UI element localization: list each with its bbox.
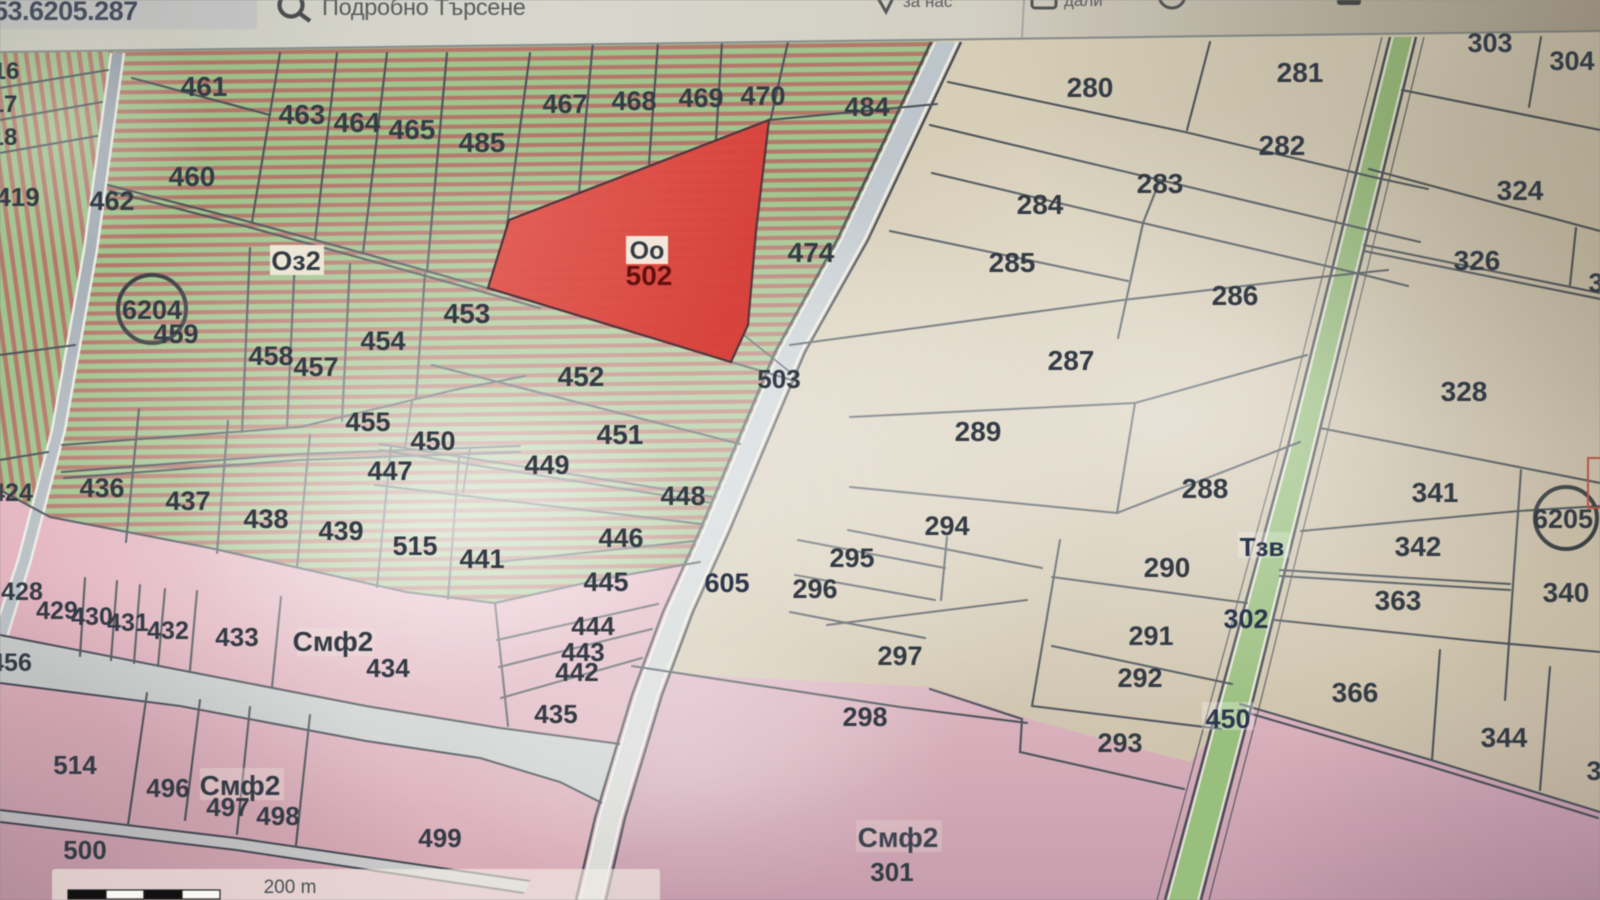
svg-text:298: 298 <box>842 702 887 732</box>
svg-text:484: 484 <box>844 92 889 122</box>
svg-text:281: 281 <box>1277 57 1324 88</box>
svg-text:326: 326 <box>1454 245 1501 276</box>
svg-text:605: 605 <box>704 568 749 598</box>
svg-text:446: 446 <box>598 523 643 553</box>
svg-text:437: 437 <box>165 486 210 516</box>
svg-text:344: 344 <box>1481 722 1528 753</box>
svg-text:450: 450 <box>1205 704 1250 734</box>
svg-text:302: 302 <box>1223 604 1268 634</box>
svg-text:290: 290 <box>1144 552 1191 583</box>
svg-text:441: 441 <box>459 544 504 574</box>
svg-text:498: 498 <box>256 801 299 831</box>
svg-text:303: 303 <box>1467 28 1512 58</box>
svg-text:Оз2: Оз2 <box>271 246 320 276</box>
svg-text:284: 284 <box>1017 189 1064 220</box>
svg-text:458: 458 <box>248 341 293 371</box>
svg-text:18: 18 <box>0 124 17 151</box>
svg-text:514: 514 <box>53 750 97 780</box>
svg-text:432: 432 <box>147 617 189 645</box>
svg-text:464: 464 <box>334 107 381 138</box>
svg-text:465: 465 <box>389 114 436 145</box>
svg-text:435: 435 <box>534 699 577 729</box>
svg-text:3: 3 <box>1586 756 1600 786</box>
svg-text:452: 452 <box>558 361 605 392</box>
svg-text:17: 17 <box>0 91 17 118</box>
svg-text:474: 474 <box>788 237 835 268</box>
svg-text:451: 451 <box>597 419 644 450</box>
svg-text:456: 456 <box>0 649 32 677</box>
svg-text:470: 470 <box>740 81 785 111</box>
svg-text:499: 499 <box>418 823 461 853</box>
svg-text:6205: 6205 <box>1533 504 1593 534</box>
svg-text:445: 445 <box>583 567 628 597</box>
svg-text:455: 455 <box>345 407 390 437</box>
svg-text:324: 324 <box>1497 175 1544 206</box>
svg-text:463: 463 <box>279 99 326 130</box>
svg-text:433: 433 <box>215 622 258 652</box>
svg-text:304: 304 <box>1549 46 1594 76</box>
svg-text:424: 424 <box>0 479 33 507</box>
svg-text:3: 3 <box>1588 268 1600 298</box>
svg-text:515: 515 <box>392 531 437 561</box>
svg-text:436: 436 <box>79 473 124 503</box>
svg-text:328: 328 <box>1441 376 1488 407</box>
svg-text:340: 340 <box>1543 577 1590 608</box>
svg-text:285: 285 <box>989 247 1036 278</box>
svg-text:502: 502 <box>626 260 673 291</box>
svg-text:434: 434 <box>366 653 410 683</box>
svg-text:449: 449 <box>524 450 569 480</box>
svg-text:450: 450 <box>410 426 455 456</box>
svg-text:Смф2: Смф2 <box>200 770 281 801</box>
svg-text:Смф2: Смф2 <box>293 626 374 657</box>
svg-text:503: 503 <box>757 364 800 394</box>
svg-text:485: 485 <box>459 127 506 158</box>
svg-text:289: 289 <box>955 416 1002 447</box>
svg-text:453: 453 <box>444 298 491 329</box>
svg-text:282: 282 <box>1259 130 1306 161</box>
svg-text:459: 459 <box>153 319 198 349</box>
svg-text:363: 363 <box>1375 585 1422 616</box>
svg-text:439: 439 <box>318 516 363 546</box>
svg-text:16: 16 <box>0 58 19 85</box>
svg-text:287: 287 <box>1048 345 1095 376</box>
svg-text:500: 500 <box>63 835 106 865</box>
svg-text:Смф2: Смф2 <box>858 822 939 853</box>
svg-text:301: 301 <box>870 857 913 887</box>
svg-text:286: 286 <box>1212 280 1259 311</box>
svg-text:454: 454 <box>360 326 405 356</box>
svg-text:294: 294 <box>924 511 969 541</box>
svg-text:419: 419 <box>0 182 40 212</box>
svg-text:462: 462 <box>89 186 134 216</box>
svg-text:342: 342 <box>1395 531 1442 562</box>
svg-text:283: 283 <box>1137 168 1184 199</box>
svg-text:431: 431 <box>107 609 149 637</box>
svg-text:288: 288 <box>1182 473 1229 504</box>
svg-text:200 m: 200 m <box>264 877 317 898</box>
svg-text:460: 460 <box>169 161 216 192</box>
svg-text:280: 280 <box>1067 72 1114 103</box>
svg-text:293: 293 <box>1097 728 1142 758</box>
svg-text:Тзв: Тзв <box>1240 532 1285 562</box>
svg-text:291: 291 <box>1128 621 1173 651</box>
svg-text:297: 297 <box>877 641 922 671</box>
svg-text:366: 366 <box>1332 677 1379 708</box>
svg-text:438: 438 <box>243 504 288 534</box>
svg-text:457: 457 <box>293 352 338 382</box>
svg-text:295: 295 <box>829 543 874 573</box>
svg-text:447: 447 <box>367 456 412 486</box>
svg-text:496: 496 <box>146 773 189 803</box>
svg-text:461: 461 <box>181 71 228 102</box>
svg-text:467: 467 <box>542 89 587 119</box>
svg-text:448: 448 <box>660 481 705 511</box>
svg-text:292: 292 <box>1117 663 1162 693</box>
svg-text:468: 468 <box>611 86 656 116</box>
svg-text:341: 341 <box>1412 477 1459 508</box>
svg-text:469: 469 <box>678 83 723 113</box>
svg-text:442: 442 <box>555 657 598 687</box>
svg-text:296: 296 <box>792 574 837 604</box>
